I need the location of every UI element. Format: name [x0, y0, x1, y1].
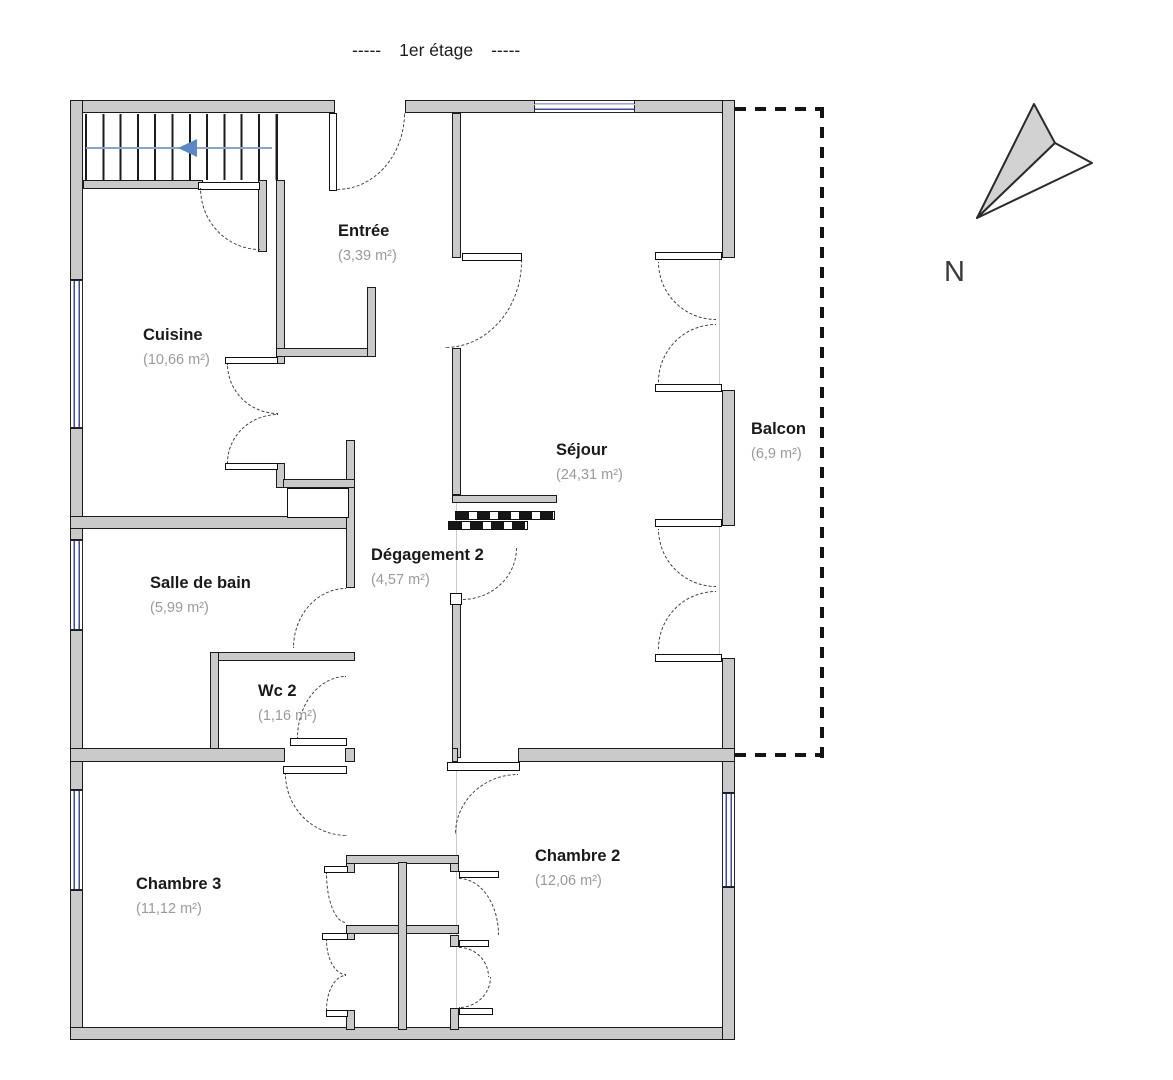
room-area: (24,31 m²) — [556, 464, 623, 486]
room-area: (5,99 m²) — [150, 597, 251, 619]
door-leaf — [324, 866, 348, 873]
room-area: (12,06 m²) — [535, 870, 620, 892]
stairs-direction-arrow-icon — [178, 139, 197, 157]
wall-exterior-top-mid — [405, 100, 535, 113]
door-leaf — [322, 933, 348, 940]
wall-sejour-west-2 — [452, 348, 461, 495]
floor-title: ----- 1er étage ----- — [352, 40, 520, 61]
room-name: Salle de bain — [150, 574, 251, 592]
door-arc — [227, 364, 278, 414]
door-arc — [227, 414, 278, 463]
door-leaf — [459, 1008, 493, 1015]
sliding-door — [455, 511, 555, 520]
window-salle-de-bain-west — [70, 540, 83, 630]
wall-exterior-top-east — [633, 100, 735, 113]
wall-cuisine-east-1 — [276, 180, 285, 364]
door-arc — [459, 947, 489, 977]
title-dash-right: ----- — [491, 40, 520, 61]
wall-closet-mid-v — [398, 862, 407, 1030]
door-leaf — [283, 766, 347, 774]
wall-exterior-left-3 — [70, 630, 83, 790]
wall-chambre3-north-a — [70, 748, 285, 762]
door-arc — [337, 113, 405, 190]
room-name: Entrée — [338, 222, 389, 240]
wall-exterior-right-2 — [722, 390, 735, 526]
room-name: Balcon — [751, 420, 806, 438]
floor-plan: ----- 1er étage ----- — [0, 0, 1173, 1080]
north-label: N — [944, 256, 965, 289]
wall-wc-west — [210, 652, 219, 757]
door-arc — [326, 975, 346, 1010]
room-label-cuisine: Cuisine (10,66 m²) — [143, 323, 210, 371]
door-arc — [658, 324, 716, 382]
wall-stairs-south — [83, 180, 203, 189]
wall-closet-east-2 — [450, 935, 459, 947]
door-leaf — [225, 463, 278, 470]
room-label-sejour: Séjour (24,31 m²) — [556, 438, 623, 486]
room-name: Wc 2 — [258, 682, 297, 700]
north-arrow-icon — [930, 80, 1130, 260]
axis-line — [534, 104, 635, 105]
door-arc — [326, 873, 346, 923]
door-leaf — [655, 252, 722, 260]
wall-exterior-right-4 — [722, 887, 735, 1040]
door-arc — [658, 591, 716, 649]
window-chambre2-east — [722, 793, 735, 887]
door-leaf — [459, 940, 489, 947]
door-leaf — [326, 1010, 348, 1017]
room-area: (1,16 m²) — [258, 705, 317, 727]
door-arc — [455, 774, 518, 834]
room-label-salle-de-bain: Salle de bain (5,99 m²) — [150, 571, 251, 619]
window-cuisine-west — [70, 280, 83, 428]
room-name: Cuisine — [143, 326, 203, 344]
door-arc — [200, 188, 260, 250]
sliding-door — [448, 521, 528, 530]
wall-chambre2-north-b — [518, 748, 735, 762]
room-area: (11,12 m²) — [136, 898, 221, 920]
door-leaf — [655, 384, 722, 392]
room-label-chambre-3: Chambre 3 (11,12 m²) — [136, 872, 221, 920]
wall-entree-south — [276, 348, 376, 357]
wall-chambre2-north-a — [452, 748, 458, 762]
door-leaf — [459, 871, 499, 878]
wall-exterior-left-1 — [70, 100, 83, 280]
room-label-degagement-2: Dégagement 2 (4,57 m²) — [371, 543, 484, 591]
door-leaf — [447, 762, 520, 771]
door-arc — [293, 588, 346, 648]
wall-exterior-top-west — [70, 100, 335, 113]
wall-sejour-west-3 — [452, 600, 461, 758]
room-label-entree: Entrée (3,39 m²) — [338, 219, 397, 267]
room-name: Chambre 3 — [136, 875, 221, 893]
door-leaf — [329, 113, 337, 191]
wall-exterior-right-1 — [722, 100, 735, 258]
wall-exterior-right-3 — [722, 658, 735, 793]
door-arc — [658, 529, 716, 587]
door-arc — [459, 878, 499, 935]
door-post — [450, 593, 462, 605]
window-sejour-north — [534, 100, 635, 113]
wall-sejour-stub-h — [452, 495, 557, 503]
duct-box — [287, 488, 349, 518]
wall-entree-stub — [367, 287, 376, 357]
wall-sejour-west-1 — [452, 113, 461, 258]
window-chambre3-west — [70, 790, 83, 890]
room-name: Séjour — [556, 441, 607, 459]
wall-chambre3-north-b — [345, 748, 355, 762]
door-arc — [326, 940, 346, 975]
room-label-balcon: Balcon (6,9 m²) — [751, 417, 806, 465]
door-arc — [445, 261, 522, 348]
balcony-outline-right — [820, 107, 824, 758]
axis-line — [719, 526, 720, 658]
door-arc — [658, 262, 716, 320]
room-name: Dégagement 2 — [371, 546, 484, 564]
room-label-chambre-2: Chambre 2 (12,06 m²) — [535, 844, 620, 892]
wall-wc-north — [210, 652, 355, 661]
room-area: (4,57 m²) — [371, 569, 484, 591]
room-area: (6,9 m²) — [751, 443, 806, 465]
door-leaf — [225, 357, 278, 364]
floor-title-text: 1er étage — [399, 40, 473, 61]
door-leaf — [462, 253, 522, 261]
wall-exterior-left-4 — [70, 890, 83, 1040]
room-label-wc-2: Wc 2 (1,16 m²) — [258, 679, 317, 727]
room-area: (3,39 m²) — [338, 245, 397, 267]
door-leaf — [290, 738, 347, 746]
balcony-outline-bottom — [735, 753, 822, 757]
door-leaf — [655, 654, 722, 662]
room-name: Chambre 2 — [535, 847, 620, 865]
balcony-outline-top — [735, 107, 823, 111]
door-leaf — [655, 519, 722, 527]
axis-line — [719, 258, 720, 390]
room-area: (10,66 m²) — [143, 349, 210, 371]
title-dash-left: ----- — [352, 40, 381, 61]
wall-closet-east-3 — [450, 1008, 459, 1030]
wall-niche-north — [283, 479, 355, 488]
door-arc — [459, 977, 491, 1008]
door-arc — [285, 774, 347, 836]
